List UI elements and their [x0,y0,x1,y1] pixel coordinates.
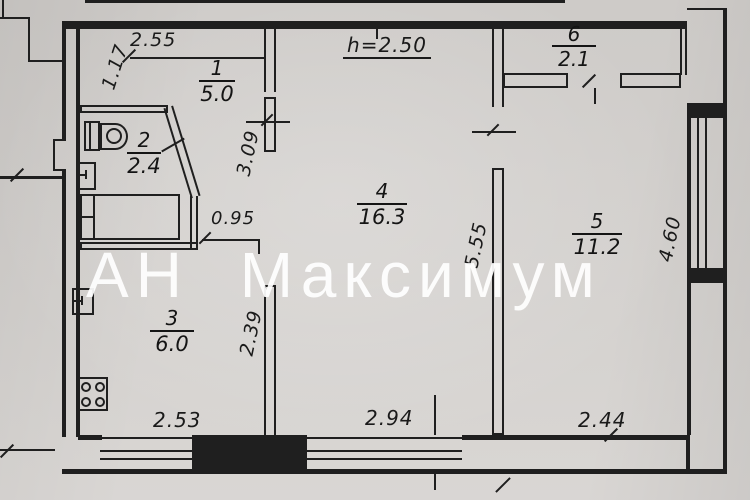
room-number: 6 [568,22,581,46]
dimension-line [594,88,596,104]
window-kitchen [100,458,192,460]
dimension-tick [487,124,500,137]
wall-right-outer [723,8,727,474]
dimension-line [434,395,436,435]
dimension-tick [10,168,24,182]
toilet-tank-icon [84,121,100,151]
wall-left-outer [62,21,66,141]
window-kitchen [100,450,192,452]
wall-room6-bottom [503,73,568,88]
kitchen-sink-icon [81,296,83,305]
dim-entry-depth: 1.17 [98,42,133,93]
dimension-tick [495,477,511,493]
room-number: 1 [211,56,224,80]
room-label-6: 6 2.1 [544,24,604,69]
dim-room4-left: 3.09 [233,128,264,178]
room-area: 6.0 [155,332,188,356]
dimension-line [472,131,516,133]
wall-hall-room4 [264,29,276,92]
room-label-4: 4 16.3 [352,181,412,228]
wall-niche [53,139,55,171]
room-number: 2 [138,128,151,152]
room-area: 2.4 [127,154,160,178]
dim-hall-width: 2.55 [130,29,176,51]
neighbor-wall-fragment [687,8,723,10]
window-room4 [307,450,462,452]
window-room5 [705,118,707,268]
sink-icon [85,170,87,179]
room-label-2: 2 2.4 [114,130,174,177]
dim-corridor-width: 0.95 [211,208,255,229]
wall-room4-room5 [492,29,504,107]
dimension-tick [0,444,14,458]
window-room5 [697,118,699,268]
window-room4 [307,437,462,439]
wall-bottom-inner [78,435,102,440]
bathtub-icon [80,194,180,240]
neighbor-wall-fragment [28,17,30,62]
stove-burner-icon [81,382,91,392]
room-area: 2.1 [558,47,590,71]
dim-kitchen-right: 2.39 [236,308,267,358]
wall-hall-room4 [264,97,276,152]
neighbor-wall-fragment [0,17,30,19]
wall-bottom-inner [462,435,690,440]
window-kitchen [100,437,192,439]
stove-icon [76,377,108,411]
wall-pier-solid [687,103,723,118]
dimension-tick [582,74,596,88]
room-number: 4 [376,179,389,203]
dim-room4-bottom: 2.94 [365,406,414,430]
stove-burner-icon [81,397,91,407]
room-number: 5 [591,209,604,233]
dim-room5-right: 4.60 [655,214,686,264]
bathtub-icon [82,216,93,218]
agency-watermark: АН Максимум [86,238,602,312]
floor-plan: 2.55 1.17 h=2.50 3.09 0.95 2.39 5.55 4.6… [0,0,750,500]
dim-ceiling-height: h=2.50 [343,33,431,59]
wall-bottom-outer [62,469,727,474]
photo-edge-line [85,0,565,3]
dimension-line [434,474,436,490]
toilet-tank-icon [89,123,91,149]
neighbor-wall-fragment [0,176,62,179]
neighbor-wall-fragment [28,60,64,62]
bathtub-icon [93,196,95,238]
window-room4 [307,458,462,460]
wall-left-outer [62,169,66,437]
dim-room5-bottom: 2.44 [578,408,627,432]
wall-corner-connector [686,435,690,473]
room-label-3: 3 6.0 [142,308,202,355]
dim-kitchen-bottom: 2.53 [153,408,202,432]
room-area: 16.3 [359,205,406,229]
wall-bath-top [80,105,168,113]
room-area: 5.0 [200,82,233,106]
wall-room6-bottom [620,73,681,88]
dimension-line [246,121,290,123]
neighbor-wall-fragment [2,0,4,18]
wall-room6-right [680,29,687,75]
stove-burner-icon [95,397,105,407]
wall-niche [53,169,66,171]
room-label-1: 1 5.0 [187,58,247,105]
wall-pier-solid [687,268,723,283]
stove-burner-icon [95,382,105,392]
